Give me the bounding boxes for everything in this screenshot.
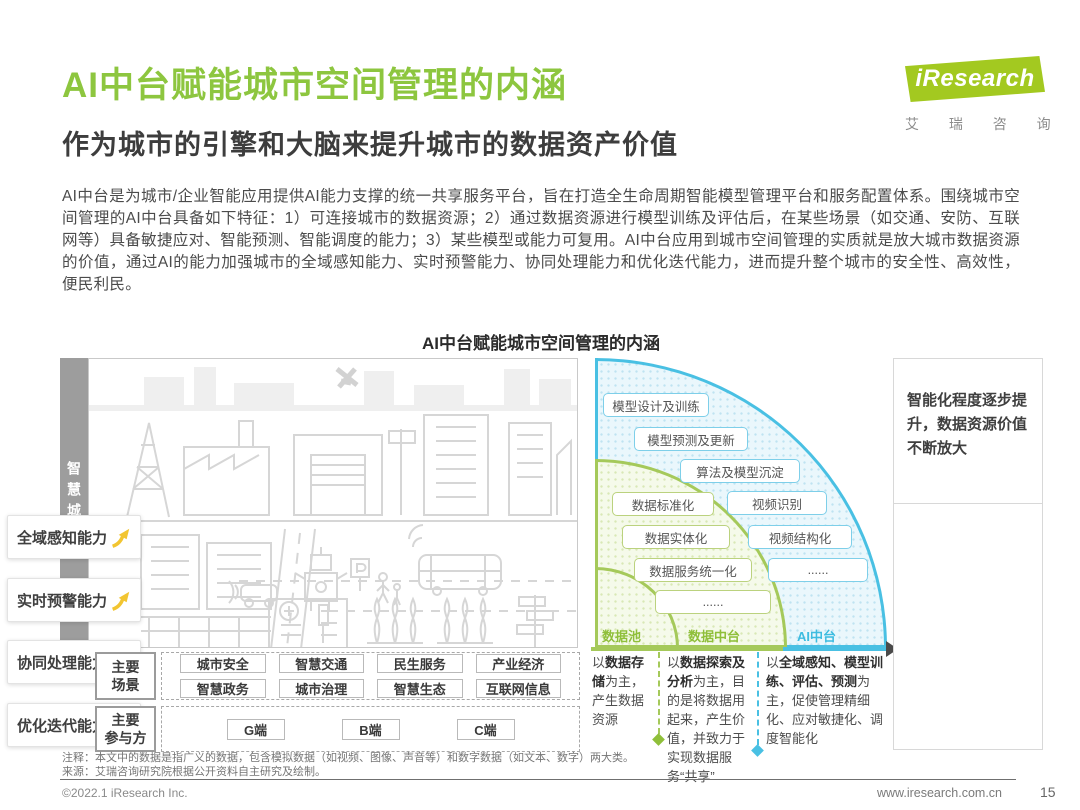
cctv-camera-icon — [389, 429, 415, 515]
footer-divider — [60, 779, 1016, 780]
footnote-source: 来源：艾瑞咨询研究院根据公开资料自主研究及绘制。 — [62, 765, 326, 779]
participant-cell: B端 — [342, 719, 400, 740]
zone-label-data-pool: 数据池 — [602, 626, 641, 645]
column-divider-green — [658, 652, 660, 734]
diamond-marker — [751, 744, 764, 757]
participants-container: G端 B端 C端 — [161, 706, 580, 752]
hospital-icon — [269, 599, 347, 648]
diamond-marker — [652, 733, 665, 746]
capability-box: 全域感知能力 — [7, 515, 141, 559]
scene-cell: 城市安全 — [180, 654, 266, 673]
baseline-blue — [783, 647, 886, 651]
participant-cell: C端 — [457, 719, 515, 740]
footer-copyright: ©2022.1 iResearch Inc. — [62, 786, 188, 800]
capability-label: 协同处理能力 — [17, 652, 107, 673]
column-data-platform-desc: 以数据探索及分析为主，目的是将数据用起来，产生价值，并致力于实现数据服务“共享” — [667, 653, 753, 786]
scene-cell: 城市治理 — [279, 679, 365, 698]
baseline-green — [591, 647, 783, 651]
robot-icon — [295, 547, 347, 611]
column-ai-platform-desc: 以全域感知、模型训练、评估、预测为主，促使管理精细化、应对敏捷化、调度智能化 — [766, 653, 888, 748]
up-arrow-icon — [110, 590, 131, 611]
zone-label-data-platform: 数据中台 — [688, 626, 740, 645]
smart-city-illustration — [89, 359, 578, 648]
up-arrow-icon — [110, 527, 131, 548]
figure-title: AI中台赋能城市空间管理的内涵 — [62, 329, 1020, 354]
city-illustration-frame — [88, 358, 578, 648]
scene-cell: 智慧交通 — [279, 654, 365, 673]
capability-label: 优化迭代能力 — [17, 715, 107, 736]
iresearch-logo-shape: iResearch — [905, 56, 1045, 102]
ai-pill: 视频结构化 — [748, 525, 852, 549]
capability-panel: 智能化程度逐步提升，数据资源价值不断放大 — [893, 358, 1043, 750]
capability-label: 实时预警能力 — [17, 590, 107, 611]
skyline-silhouette — [89, 367, 578, 411]
signpost-icon — [517, 595, 553, 647]
ai-pill: 视频识别 — [727, 491, 827, 515]
page-subtitle: 作为城市的引擎和大脑来提升城市的数据资产价值 — [62, 123, 678, 162]
footer-page-number: 15 — [1040, 784, 1056, 800]
data-pill: 数据实体化 — [622, 525, 730, 549]
power-pylon-icon — [127, 423, 169, 517]
warehouse-icon — [294, 435, 382, 515]
data-pill: ...... — [655, 590, 771, 614]
apartment-buildings-icon — [141, 535, 271, 647]
ai-pill: 模型预测及更新 — [634, 427, 748, 451]
bus-icon — [409, 525, 501, 595]
footnote-note: 注释：本文中的数据是指广义的数据，包含模拟数据（如视频、图像、声音等）和数字数据… — [62, 751, 634, 765]
capability-panel-headline: 智能化程度逐步提升，数据资源价值不断放大 — [894, 359, 1042, 504]
tower-building-icon — [509, 423, 571, 515]
intro-paragraph: AI中台是为城市/企业智能应用提供AI能力支撑的统一共享服务平台，旨在打造全生命… — [62, 186, 1020, 296]
ai-pill: 算法及模型沉淀 — [680, 459, 800, 483]
footer-url[interactable]: www.iresearch.com.cn — [850, 786, 1002, 800]
trees-icon — [367, 599, 493, 643]
logo-chinese-name: 艾 瑞 咨 询 — [905, 114, 1053, 134]
factory-icon — [184, 421, 269, 515]
office-building-icon — [424, 415, 488, 515]
scene-cell: 互联网信息 — [476, 679, 562, 698]
capability-box: 实时预警能力 — [7, 578, 141, 622]
parking-sign-icon — [351, 559, 369, 591]
scene-cell: 产业经济 — [476, 654, 562, 673]
plane-icon — [337, 369, 357, 387]
logo-wordmark: iResearch — [915, 65, 1034, 93]
scenes-label: 主要 场景 — [95, 652, 156, 700]
ai-pill: 模型设计及训练 — [603, 393, 709, 417]
pedestrians-icon — [377, 573, 400, 605]
scenes-container: 城市安全 智慧交通 民生服务 产业经济 智慧政务 城市治理 智慧生态 互联网信息 — [161, 652, 580, 700]
data-pill: 数据服务统一化 — [634, 558, 752, 582]
data-pill: 数据标准化 — [612, 492, 714, 516]
column-data-pool-desc: 以数据存储为主，产生数据资源 — [592, 653, 656, 729]
participants-label: 主要 参与方 — [95, 706, 156, 752]
scene-cell: 民生服务 — [377, 654, 463, 673]
ai-pill: ...... — [768, 558, 868, 582]
scene-cell: 智慧生态 — [377, 679, 463, 698]
participant-cell: G端 — [227, 719, 285, 740]
scene-cell: 智慧政务 — [180, 679, 266, 698]
column-divider-teal — [757, 652, 759, 745]
page-title: AI中台赋能城市空间管理的内涵 — [62, 57, 567, 108]
iresearch-logo: iResearch 艾 瑞 咨 询 — [893, 56, 1053, 134]
logo-i-dot-icon — [913, 53, 921, 61]
capability-label: 全域感知能力 — [17, 527, 107, 548]
zone-label-ai-platform: AI中台 — [797, 626, 836, 645]
